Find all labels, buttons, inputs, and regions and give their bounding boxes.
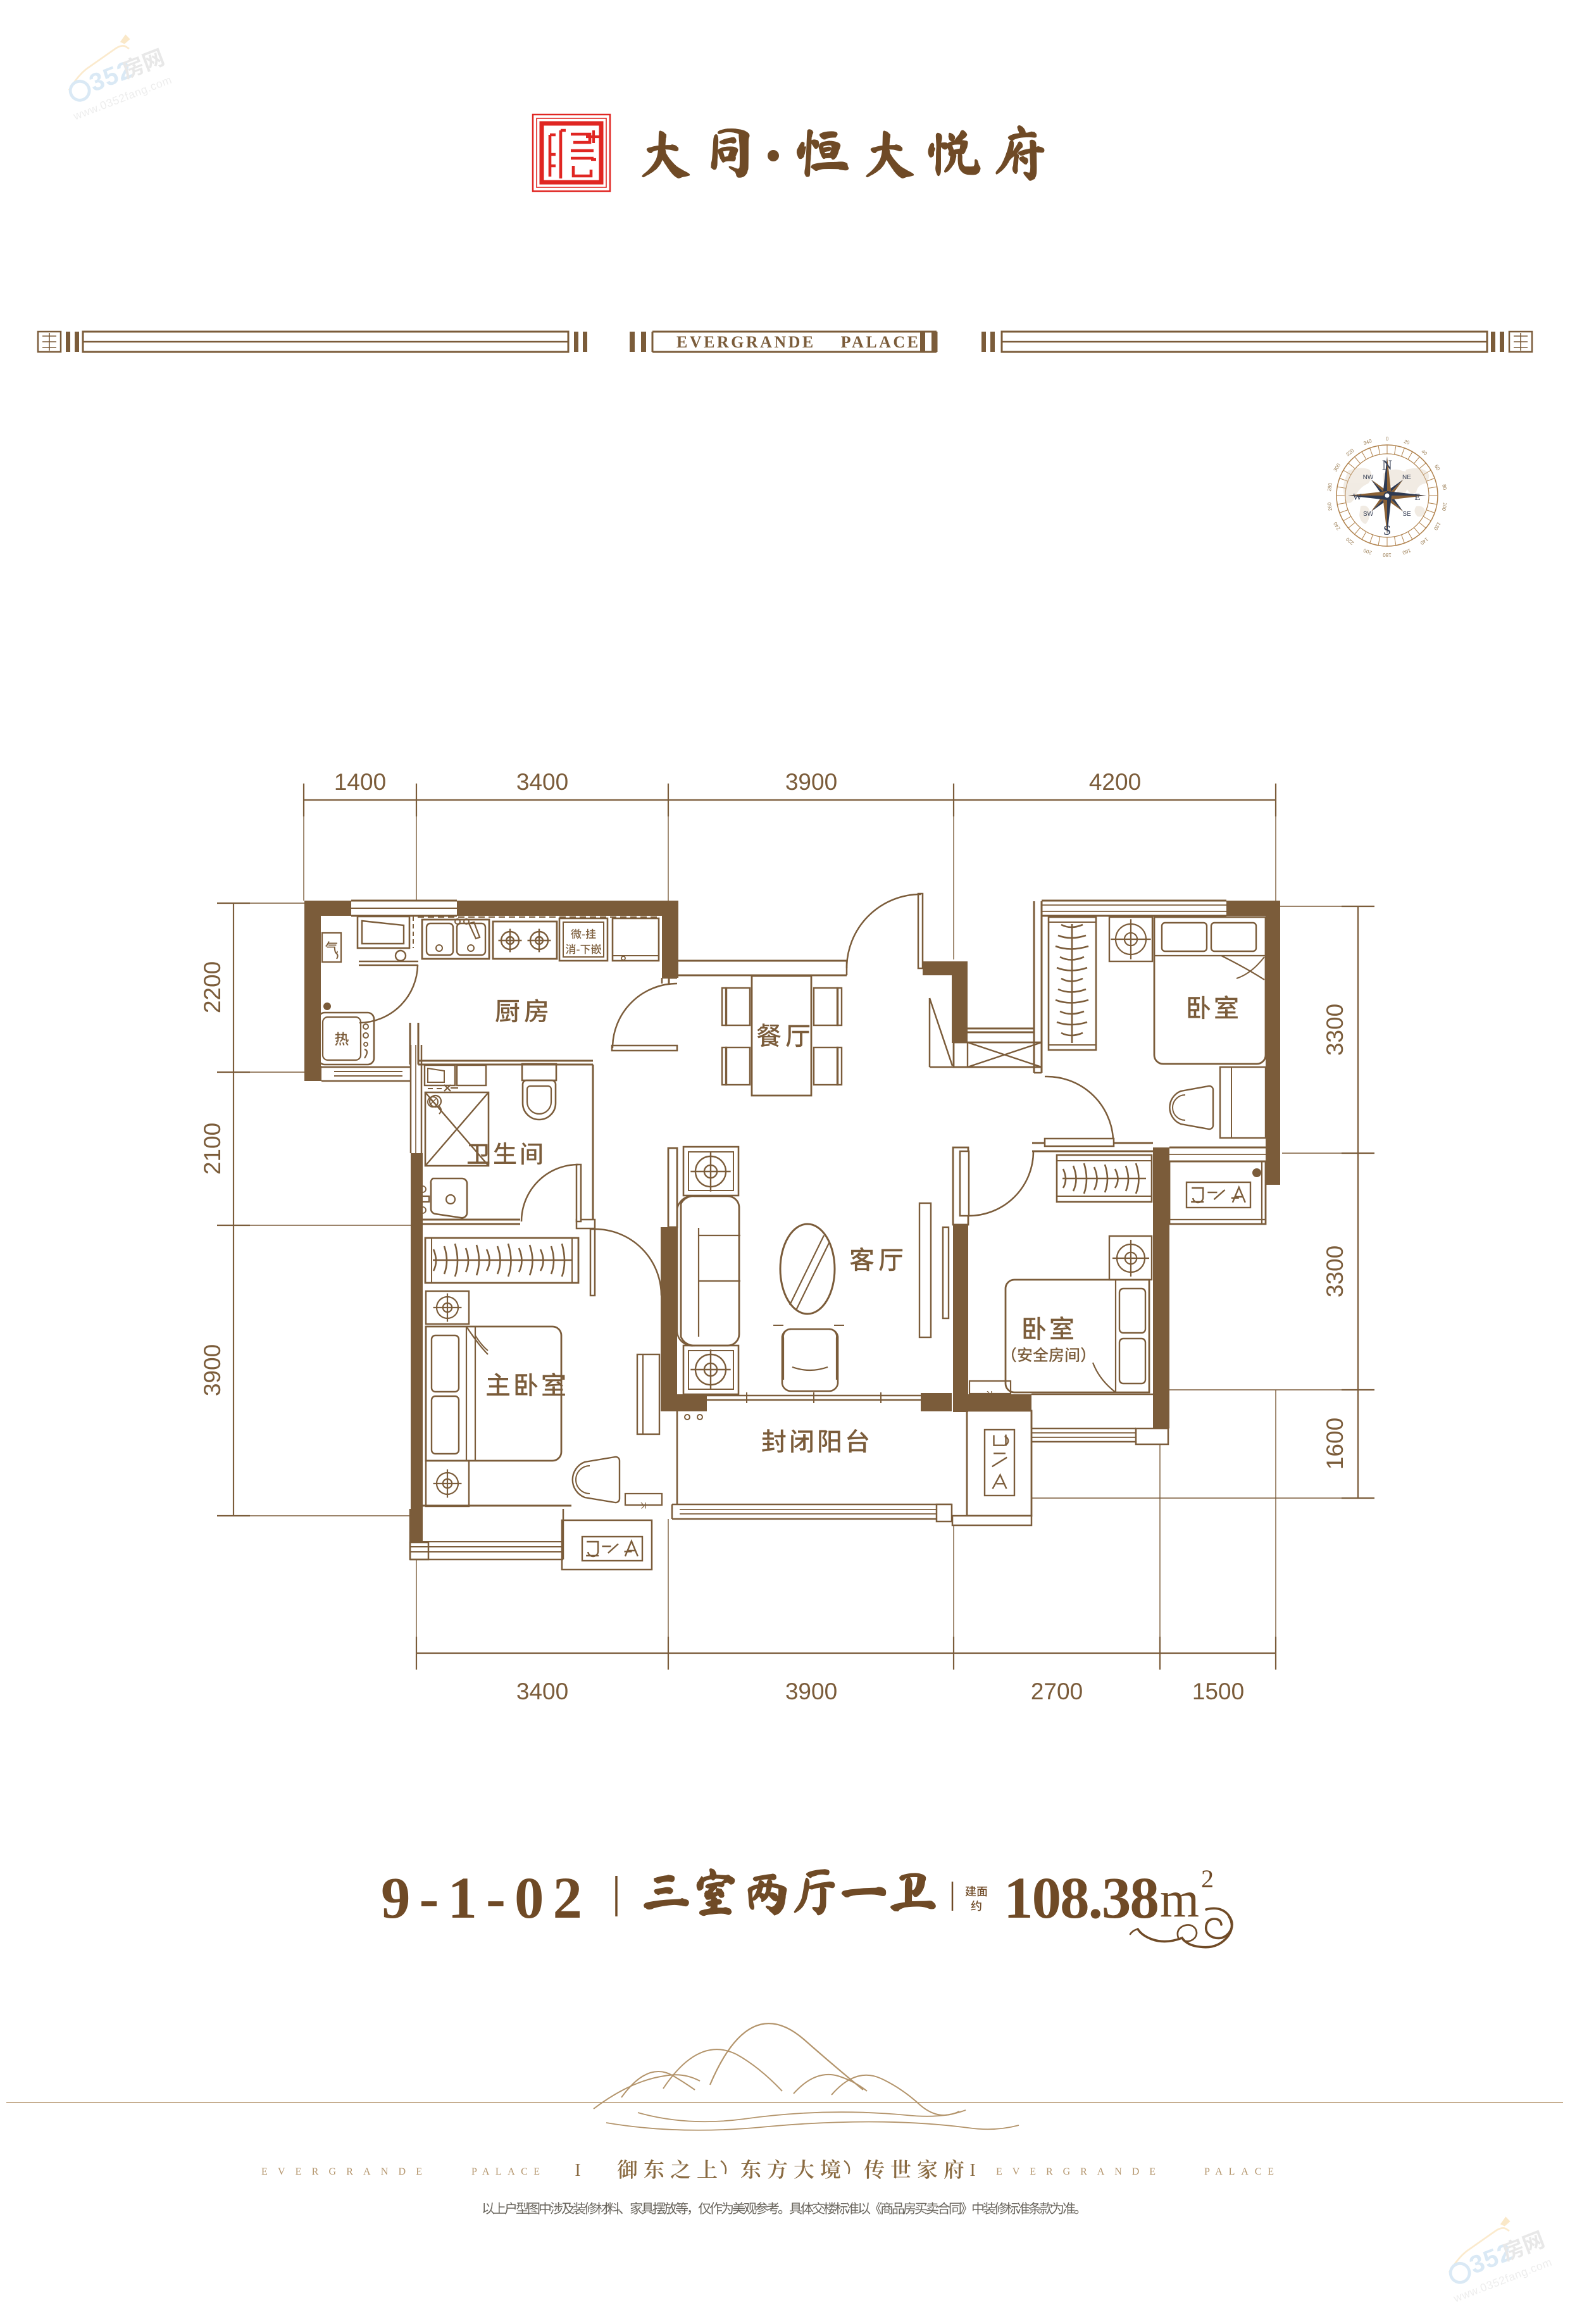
svg-text:1600: 1600 (1322, 1418, 1348, 1470)
svg-text:3400: 3400 (516, 1678, 568, 1704)
svg-text:3900: 3900 (785, 769, 837, 795)
svg-text:EVERGRANDE PALACE: EVERGRANDE PALACE (676, 333, 918, 351)
svg-text:I: I (575, 2161, 580, 2180)
svg-text:1500: 1500 (1192, 1678, 1244, 1704)
svg-text:3300: 3300 (1322, 1246, 1348, 1297)
svg-text:3900: 3900 (199, 1344, 225, 1396)
svg-text:2: 2 (1201, 1865, 1214, 1893)
svg-text:9-1-02: 9-1-02 (381, 1866, 591, 1931)
svg-text:1400: 1400 (334, 769, 386, 795)
svg-text:NE: NE (1402, 474, 1411, 481)
svg-text:E: E (1414, 492, 1420, 503)
svg-text:2100: 2100 (199, 1123, 225, 1175)
svg-text:SW: SW (1363, 511, 1374, 518)
svg-text:K: K (640, 1501, 647, 1511)
svg-text:NW: NW (1363, 474, 1374, 481)
svg-text:SE: SE (1402, 511, 1411, 518)
svg-text:W: W (1353, 492, 1362, 503)
svg-text:3900: 3900 (785, 1678, 837, 1704)
svg-text:3400: 3400 (516, 769, 568, 795)
svg-text:0: 0 (1386, 436, 1389, 442)
svg-text:3300: 3300 (1322, 1004, 1348, 1056)
svg-text:180: 180 (1383, 552, 1392, 558)
svg-text:108.38: 108.38 (1004, 1866, 1158, 1931)
svg-text:2200: 2200 (199, 961, 225, 1013)
svg-text:4200: 4200 (1089, 769, 1141, 795)
svg-text:S: S (1383, 522, 1391, 538)
svg-text:K: K (987, 1389, 993, 1399)
svg-text:N: N (1382, 457, 1392, 473)
svg-text:m: m (1160, 1872, 1199, 1928)
svg-text:I: I (969, 2161, 975, 2180)
svg-text:2700: 2700 (1031, 1678, 1083, 1704)
